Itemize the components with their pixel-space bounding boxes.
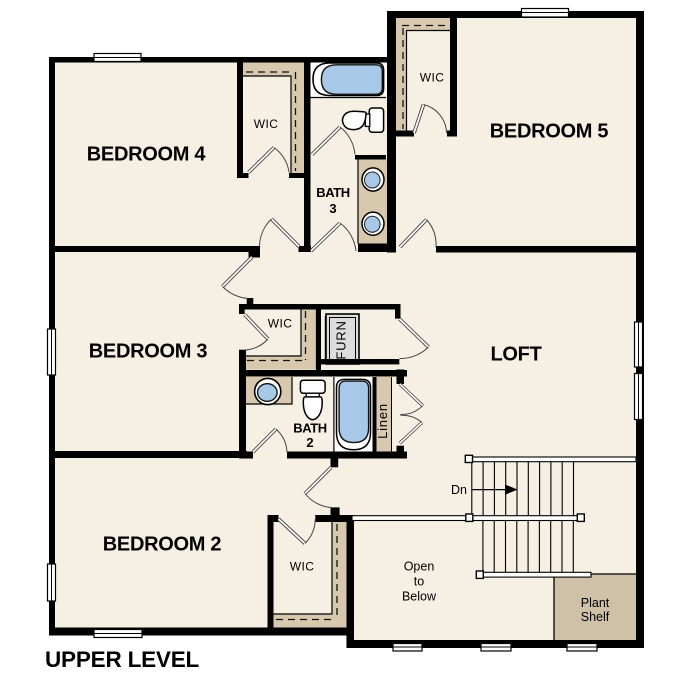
svg-text:WIC: WIC xyxy=(420,71,445,85)
svg-text:BEDROOM 5: BEDROOM 5 xyxy=(490,121,609,143)
svg-text:WIC: WIC xyxy=(254,117,279,131)
svg-text:Plant: Plant xyxy=(581,596,610,610)
svg-text:Open: Open xyxy=(404,560,435,574)
svg-text:BATH: BATH xyxy=(316,185,350,200)
svg-text:WIC: WIC xyxy=(290,560,315,574)
svg-text:Linen: Linen xyxy=(375,403,390,439)
svg-text:BEDROOM 4: BEDROOM 4 xyxy=(87,144,207,166)
svg-text:3: 3 xyxy=(329,201,336,216)
svg-text:Shelf: Shelf xyxy=(581,610,610,624)
svg-text:to: to xyxy=(414,575,424,589)
svg-text:WIC: WIC xyxy=(268,317,293,331)
svg-text:UPPER LEVEL: UPPER LEVEL xyxy=(45,647,200,672)
svg-text:BATH: BATH xyxy=(293,421,327,436)
svg-text:BEDROOM 3: BEDROOM 3 xyxy=(89,341,208,363)
svg-text:Dn: Dn xyxy=(451,483,467,497)
svg-text:BEDROOM 2: BEDROOM 2 xyxy=(103,534,222,556)
svg-text:Below: Below xyxy=(402,590,437,604)
svg-text:LOFT: LOFT xyxy=(490,344,541,366)
svg-text:2: 2 xyxy=(306,435,313,450)
svg-text:FURN: FURN xyxy=(333,320,348,359)
